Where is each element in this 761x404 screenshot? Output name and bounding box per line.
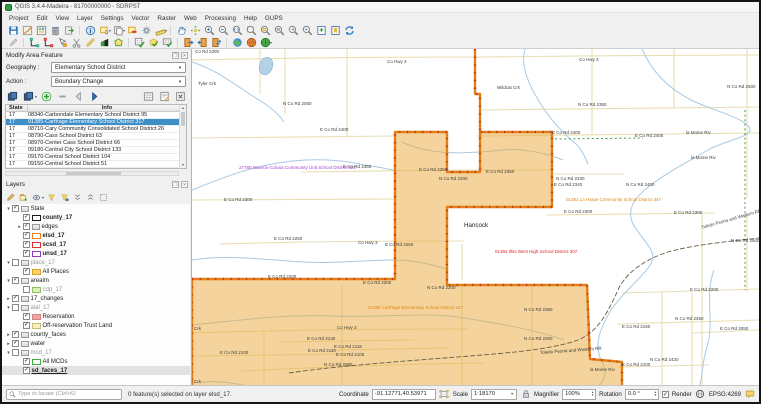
quality-grid-icon[interactable] — [160, 37, 174, 49]
layer-label: State — [31, 206, 45, 212]
qgis-logo-icon — [5, 4, 12, 11]
map-label: Tyler Crk — [198, 81, 217, 86]
project-save-icon[interactable] — [6, 25, 20, 37]
modify-features-icon[interactable] — [55, 37, 69, 49]
chevron-down-icon: ▼ — [510, 392, 514, 396]
layer-tree-item[interactable]: ▸✓17_changes — [2, 294, 190, 303]
close-tool-icon[interactable] — [173, 90, 187, 103]
export-map-icon[interactable] — [62, 25, 76, 37]
table-row[interactable]: 1709180-Central City School District 133 — [6, 147, 179, 154]
magnifier-spinbox[interactable]: 100% ▲▼ — [562, 389, 596, 400]
layer-checkbox[interactable] — [12, 259, 19, 266]
map-label: E Co Rd 2400 — [635, 133, 664, 138]
layer-label: arealm — [31, 278, 49, 284]
filter-expression-icon[interactable] — [59, 193, 70, 203]
map-label: E Co Rd 2115 — [334, 344, 362, 349]
map-label: Co Rd 2300 — [195, 49, 220, 54]
layer-tree-item[interactable]: ✓scsd_17 — [2, 240, 190, 249]
expander-icon[interactable]: ▾ — [5, 206, 12, 212]
cell-info: 08340-Carbondale Elementary School Distr… — [28, 112, 179, 118]
layer-checkbox[interactable] — [23, 286, 30, 293]
cell-info: 01385-Carthage Elementary School Distric… — [28, 119, 179, 125]
map-label: E Co Rd 2250 — [274, 236, 303, 241]
zoom-to-selection-icon[interactable] — [258, 25, 272, 37]
map-label: E Co Rd 2050 — [720, 326, 749, 331]
attribute-table-icon[interactable] — [141, 90, 155, 103]
add-area-icon[interactable] — [39, 90, 53, 103]
layer-swatch — [32, 242, 41, 248]
style-manager-icon[interactable] — [20, 25, 34, 37]
map-label: N Co Rd 2095 — [324, 362, 353, 367]
layer-label: place_17 — [31, 260, 55, 266]
group-icon — [21, 260, 29, 266]
expander-icon[interactable]: ▾ — [5, 260, 12, 266]
map-label: Hancock — [464, 222, 489, 229]
layer-label: mcd_17 — [31, 350, 52, 356]
layer-checkbox[interactable]: ✓ — [12, 340, 19, 347]
menu-item-settings[interactable]: Settings — [97, 15, 128, 22]
locate-box[interactable] — [6, 389, 122, 400]
cell-state: 17 — [6, 112, 28, 118]
layer-tree: ▾✓State✓county_17▸✓edges✓elsd_17✓scsd_17… — [2, 204, 190, 389]
geography-select[interactable]: Elementary School District ▼ — [51, 62, 186, 73]
layer-label: aial_17 — [31, 305, 50, 311]
scroll-thumb[interactable] — [181, 112, 185, 126]
map-label: N Co Rd 2330 — [556, 176, 585, 181]
map-label: E Co Rd 2300 — [224, 197, 253, 202]
import-door-icon[interactable] — [181, 37, 195, 49]
crs-globe-icon[interactable] — [695, 389, 706, 400]
window-title: QGIS 3.4.4-Madeira - 81700000000 - SDRPS… — [15, 4, 140, 10]
zoom-native-icon[interactable] — [230, 25, 244, 37]
toolbar-separator — [23, 38, 24, 47]
cell-state: 17 — [6, 140, 28, 146]
layer-tree-item[interactable]: ▸✓edges — [2, 222, 190, 231]
table-body: 1708340-Carbondale Elementary School Dis… — [6, 112, 179, 168]
map-label: la Moine Riv — [686, 130, 712, 135]
layer-label: unsd_17 — [43, 251, 67, 257]
chevron-down-icon: ▼ — [178, 79, 182, 84]
manage-map-themes-icon[interactable] — [31, 193, 42, 203]
map-label: N Co Rd 2050 — [283, 101, 312, 106]
group-icon — [21, 278, 29, 284]
geography-label: Geography : — [6, 64, 48, 71]
open-layer-styling-icon[interactable] — [5, 193, 16, 203]
toolbar-separator — [226, 38, 227, 47]
rotation-spinbox[interactable]: 0.0 ° ▲▼ — [625, 389, 659, 400]
layer-checkbox[interactable] — [12, 304, 19, 311]
search-icon — [9, 391, 16, 398]
menu-item-vector[interactable]: Vector — [128, 15, 154, 22]
map-label: E Co Rd 2100 — [622, 362, 651, 367]
zoom-in-icon[interactable] — [202, 25, 216, 37]
table-row[interactable]: 1708710-Cary Community Consolidated Scho… — [6, 126, 179, 133]
map-label: Wildcat Crk — [497, 85, 521, 90]
map-label: E Co Rd 2400 — [320, 127, 349, 132]
table-hscrollbar[interactable] — [5, 171, 179, 176]
map-label: E Co Rd 2130 — [307, 336, 336, 341]
layer-checkbox[interactable]: ✓ — [23, 322, 30, 329]
map-label: E Co Rd 2340 — [554, 182, 583, 187]
map-label: Co Hwy 3 — [337, 325, 357, 330]
action-value: Boundary Change — [55, 79, 103, 85]
cut-features-icon[interactable] — [69, 37, 83, 49]
layer-tree-item[interactable]: ▸✓county_faces — [2, 330, 190, 339]
map-label: Crk — [194, 326, 202, 331]
map-label: N Co Rd 2300 — [524, 336, 553, 341]
scroll-up-icon[interactable]: ▲ — [180, 106, 186, 110]
left-panel: Modify Area Feature ❐ ✕ Geography : Elem… — [2, 49, 192, 389]
dropdown-arrow-icon[interactable]: ▾ — [270, 40, 272, 45]
layer-tree-item[interactable]: ▾mcd_17 — [2, 348, 190, 357]
render-checkbox[interactable]: ✓ — [662, 391, 669, 398]
layer-label: elsd_17 — [43, 233, 65, 239]
scale-select[interactable]: 1:18170 ▼ — [471, 389, 517, 400]
panel-title-text: Modify Area Feature — [6, 52, 63, 59]
expander-icon[interactable]: ▾ — [5, 350, 12, 356]
group-icon — [21, 341, 29, 347]
cell-state: 17 — [6, 119, 28, 125]
expander-icon[interactable]: ▸ — [5, 332, 12, 338]
layer-swatch — [32, 314, 41, 320]
group-icon — [32, 224, 40, 230]
collapse-all-icon[interactable] — [85, 193, 96, 203]
layer-tree-item[interactable]: ▾aial_17 — [2, 303, 190, 312]
layer-label: edges — [42, 224, 58, 230]
layer-swatch — [32, 323, 41, 329]
application-window: QGIS 3.4.4-Madeira - 81700000000 - SDRPS… — [0, 0, 761, 404]
map-refresh-icon[interactable] — [342, 25, 356, 37]
geography-value: Elementary School District — [55, 65, 125, 71]
expander-icon[interactable]: ▸ — [5, 341, 12, 347]
district-table: State Info 1708340-Carbondale Elementary… — [5, 104, 187, 169]
snapping-icon[interactable] — [97, 37, 111, 49]
status-bar: 0 feature(s) selected on layer elsd_17. … — [2, 385, 759, 402]
layer-label: county_17 — [43, 215, 73, 221]
edit-attributes-icon[interactable] — [157, 90, 171, 103]
map-svg: Co Rd 2300Tyler CrkN Co Rd 2050Co Hwy 3C… — [192, 49, 759, 389]
copy-selection-menu-icon[interactable] — [21, 90, 35, 103]
toolbar-separator — [177, 38, 178, 47]
group-icon — [21, 206, 29, 212]
scale-value: 1:18170 — [474, 391, 495, 397]
layer-tree-item[interactable]: ✓All Places — [2, 267, 190, 276]
cell-info: 08970-Center Cass School District 66 — [28, 140, 179, 146]
render-label: Render — [672, 391, 692, 398]
layers-panel-title: Layers ❐ ✕ — [2, 179, 191, 190]
layer-swatch — [32, 287, 41, 293]
magnifier-label: Magnifier — [534, 391, 559, 398]
show-bookmarks-icon[interactable] — [328, 25, 342, 37]
add-group-icon[interactable] — [18, 193, 29, 203]
map-label: N Co Rd 2200 — [427, 285, 456, 290]
table-header[interactable]: State Info — [6, 105, 186, 112]
hscroll-thumb[interactable] — [66, 172, 121, 175]
map-label: N Co Rd 2350 — [578, 102, 607, 107]
vertex-tool-icon[interactable] — [27, 37, 41, 49]
map-label: N Co Rd 2500 — [727, 84, 756, 89]
map-label: 01385 Carthage Elementary School Distric… — [368, 305, 464, 310]
toggle-editing-icon[interactable] — [6, 37, 20, 49]
group-icon — [21, 350, 29, 356]
zoom-out-icon[interactable] — [216, 25, 230, 37]
scroll-down-icon[interactable]: ▼ — [180, 163, 186, 167]
dropdown-arrow-icon[interactable]: ▾ — [165, 28, 167, 33]
layer-label: cdp_17 — [43, 287, 63, 293]
layer-label: All MCDs — [43, 359, 68, 365]
layer-swatch — [32, 233, 41, 239]
title-bar: QGIS 3.4.4-Madeira - 81700000000 - SDRPS… — [2, 2, 759, 13]
menu-item-project[interactable]: Project — [5, 15, 33, 22]
pan-to-selection-icon[interactable] — [188, 25, 202, 37]
float-panel-icon[interactable]: ❐ — [172, 181, 179, 188]
map-label: Crk — [194, 379, 202, 384]
extent-icon[interactable] — [439, 389, 450, 400]
cell-info: 08710-Cary Community Consolidated School… — [28, 126, 179, 132]
close-panel-icon[interactable]: ✕ — [181, 181, 188, 188]
menu-item-view[interactable]: View — [51, 15, 73, 22]
menu-item-gups[interactable]: GUPS — [261, 15, 287, 22]
map-label: 01381 La Harpe Community School District… — [566, 197, 662, 202]
layer-label: 17_changes — [31, 296, 64, 302]
map-label: E Co Rd 2100 — [220, 350, 249, 355]
layer-tree-item[interactable]: ▾✓arealm — [2, 276, 190, 285]
chevron-down-icon: ▼ — [178, 65, 182, 70]
toolbar-separator — [128, 38, 129, 47]
orange-sphere-icon[interactable] — [244, 37, 258, 49]
menu-item-web[interactable]: Web — [180, 15, 201, 22]
cell-state: 17 — [6, 161, 28, 167]
table-scrollbar[interactable]: ▲ ▼ — [179, 105, 186, 168]
layer-label: Off-reservation Trust Land — [43, 323, 113, 329]
layout-manager-icon[interactable] — [34, 25, 48, 37]
vertex-tool-active-layer-icon[interactable] — [41, 37, 55, 49]
layer-checkbox[interactable]: ✓ — [23, 367, 30, 374]
table-row[interactable]: 1701385-Carthage Elementary School Distr… — [6, 119, 179, 126]
menu-item-edit[interactable]: Edit — [33, 15, 52, 22]
map-label: E Co Rd 2400 — [552, 130, 581, 135]
layer-checkbox[interactable]: ✓ — [23, 214, 30, 221]
layer-label: county_faces — [31, 332, 66, 338]
layer-swatch — [32, 269, 41, 275]
menu-item-help[interactable]: Help — [240, 15, 261, 22]
validate-grid-icon[interactable] — [132, 37, 146, 49]
group-icon — [21, 305, 29, 311]
map-label: N Co Rd 2450 — [675, 316, 704, 321]
magnifier-value: 100% — [565, 391, 580, 397]
new-bookmark-icon[interactable] — [314, 25, 328, 37]
column-info[interactable]: Info — [28, 105, 186, 111]
menu-bar: ProjectEditViewLayerSettingsVectorRaster… — [2, 13, 759, 24]
expand-all-icon[interactable] — [72, 193, 83, 203]
float-panel-icon[interactable]: ❐ — [172, 52, 179, 59]
map-label: E Co Rd 2350 — [486, 169, 515, 174]
rotation-value: 0.0 ° — [628, 391, 640, 397]
map-label: Co Hwy 3 — [387, 59, 407, 64]
filter-legend-icon[interactable] — [46, 193, 57, 203]
group-icon — [21, 296, 29, 302]
layer-label: water — [31, 341, 46, 347]
table-row[interactable]: 1708340-Carbondale Elementary School Dis… — [6, 112, 179, 119]
map-label: E Co Rd 2300 — [564, 209, 593, 214]
layer-label: All Places — [43, 269, 69, 275]
map-label: E Co Rd 2350 — [343, 164, 372, 169]
panel-title-text: Layers — [6, 181, 25, 188]
zoom-full-icon[interactable] — [244, 25, 258, 37]
layer-tree-item[interactable]: ✓elsd_17 — [2, 231, 190, 240]
toolbar-separator — [79, 26, 80, 35]
layer-tree-item[interactable]: ✓Reservation — [2, 312, 190, 321]
layer-checkbox[interactable]: ✓ — [23, 250, 30, 257]
layer-swatch — [32, 215, 41, 221]
layer-tree-item[interactable]: ✓Off-reservation Trust Land — [2, 321, 190, 330]
rotation-label: Rotation — [599, 391, 622, 398]
layer-tree-item[interactable]: ✓All MCDs — [2, 357, 190, 366]
map-label: Co Hwy 3 — [579, 57, 599, 62]
pan-map-icon[interactable] — [174, 25, 188, 37]
cell-info: 09170-Central School District 104 — [28, 154, 179, 160]
layer-tree-item[interactable]: ▾✓State — [2, 204, 190, 213]
map-label: E Co Rd 2150 — [622, 324, 651, 329]
menu-item-layer[interactable]: Layer — [73, 15, 97, 22]
map-canvas[interactable]: Co Rd 2300Tyler CrkN Co Rd 2050Co Hwy 3C… — [192, 49, 759, 389]
layer-tree-item[interactable]: ▸✓water — [2, 339, 190, 348]
locate-input[interactable] — [18, 391, 119, 397]
map-label: E Co Rd 2300 — [674, 210, 703, 215]
next-feature-icon[interactable] — [87, 90, 101, 103]
zoom-to-layer-icon[interactable] — [272, 25, 286, 37]
edit-toolbar: ▾ — [2, 37, 759, 49]
expander-icon[interactable]: ▸ — [16, 224, 23, 230]
modify-area-feature-title: Modify Area Feature ❐ ✕ — [2, 50, 191, 61]
spin-arrows-icon[interactable]: ▲▼ — [591, 390, 594, 399]
coordinate-input[interactable] — [372, 389, 436, 400]
layer-checkbox[interactable]: ✓ — [12, 295, 19, 302]
map-label: E Co Rd 2350 — [419, 167, 448, 172]
options-gear-icon[interactable] — [139, 25, 153, 37]
expander-icon[interactable]: ▸ — [5, 296, 12, 302]
layer-checkbox[interactable]: ✓ — [12, 277, 19, 284]
copy-selection-icon[interactable] — [5, 90, 19, 103]
coordinate-label: Coordinate — [339, 391, 369, 398]
review-polygon-icon[interactable] — [146, 37, 160, 49]
layer-tree-item[interactable]: ✓unsd_17 — [2, 249, 190, 258]
measure-sketch-icon[interactable] — [83, 37, 97, 49]
layers-toolbar: ▾ — [5, 192, 187, 203]
dropdown-arrow-icon[interactable]: ▾ — [42, 195, 44, 200]
menu-item-processing[interactable]: Processing — [201, 15, 240, 22]
map-label: 27780 Nauvoo-Colusa Community Unit Schoo… — [239, 165, 356, 170]
layer-checkbox[interactable]: ✓ — [23, 223, 30, 230]
dropdown-arrow-icon[interactable]: ▾ — [35, 94, 37, 99]
main-toolbar: ▾▾▾ — [2, 24, 759, 37]
layer-tree-item[interactable]: cdp_17 — [2, 285, 190, 294]
action-select[interactable]: Boundary Change ▼ — [51, 76, 186, 87]
remove-layer-icon[interactable] — [98, 193, 109, 203]
layer-checkbox[interactable]: ✓ — [23, 232, 30, 239]
deselect-features-icon[interactable] — [125, 25, 139, 37]
layer-label: Reservation — [43, 314, 75, 320]
map-label: E Co Rd 2250 — [385, 242, 414, 247]
cell-info: 08790-Cass School District 63 — [28, 133, 179, 139]
map-label: la Moine Riv — [590, 367, 616, 372]
map-label: N Co Rd 2200 — [439, 176, 468, 181]
action-label: Action : — [6, 78, 48, 85]
layer-label: scsd_17 — [43, 242, 67, 248]
delete-selected-icon[interactable] — [48, 25, 62, 37]
scale-label: Scale — [453, 391, 468, 398]
web-globe-icon[interactable] — [230, 37, 244, 49]
map-label: N Co Rd 2500 — [731, 238, 759, 243]
export-door-icon[interactable] — [195, 37, 209, 49]
cell-state: 17 — [6, 154, 28, 160]
map-label: E Co Rd 2105 — [336, 352, 365, 357]
remove-area-icon[interactable] — [55, 90, 69, 103]
status-message: 0 feature(s) selected on layer elsd_17. — [128, 391, 232, 398]
close-panel-icon[interactable]: ✕ — [181, 52, 188, 59]
zoom-next-icon[interactable] — [300, 25, 314, 37]
cell-state: 17 — [6, 126, 28, 132]
previous-feature-icon[interactable] — [71, 90, 85, 103]
lock-scale-icon[interactable] — [520, 389, 531, 400]
layer-checkbox[interactable] — [12, 349, 19, 356]
messages-icon[interactable] — [744, 389, 755, 400]
expander-icon[interactable]: ▾ — [5, 278, 12, 284]
menu-item-raster[interactable]: Raster — [153, 15, 180, 22]
group-icon — [21, 332, 29, 338]
layer-checkbox[interactable]: ✓ — [12, 205, 19, 212]
identify-features-icon[interactable] — [83, 25, 97, 37]
map-label: N Co Rd 2380 — [524, 307, 553, 312]
layer-checkbox[interactable]: ✓ — [23, 241, 30, 248]
map-label: 01384 Illini West High School District 3… — [495, 249, 578, 254]
expander-icon[interactable]: ▾ — [5, 305, 12, 311]
layer-tree-item[interactable]: ▾place_17 — [2, 258, 190, 267]
table-row[interactable]: 1709150-Central School District 51 — [6, 161, 179, 168]
toolbar-separator — [170, 26, 171, 35]
spin-arrows-icon[interactable]: ▲▼ — [654, 390, 657, 399]
layer-tree-item[interactable]: ✓sd_faces_17 — [2, 366, 190, 375]
map-label: Co Hwy 3 — [358, 240, 378, 245]
map-label: N Co Rd 2420 — [650, 357, 679, 362]
cell-info: 09150-Central School District 51 — [28, 161, 179, 167]
map-label: E Co Rd 2200 — [690, 287, 719, 292]
layer-checkbox[interactable]: ✓ — [23, 358, 30, 365]
cell-state: 17 — [6, 133, 28, 139]
add-polygon-icon[interactable] — [111, 37, 125, 49]
cell-info: 09180-Central City School District 133 — [28, 147, 179, 153]
layer-swatch — [32, 359, 41, 365]
column-state[interactable]: State — [6, 105, 28, 111]
transfer-door-icon[interactable] — [209, 37, 223, 49]
layer-checkbox[interactable]: ✓ — [23, 268, 30, 275]
layer-checkbox[interactable]: ✓ — [12, 331, 19, 338]
modify-feature-toolbar: ▾ — [5, 89, 187, 104]
layer-tree-item[interactable]: ✓county_17 — [2, 213, 190, 222]
crs-value[interactable]: EPSG:4269 — [709, 391, 741, 398]
table-row[interactable]: 1708970-Center Cass School District 66 — [6, 140, 179, 147]
table-row[interactable]: 1708790-Cass School District 63 — [6, 133, 179, 140]
zoom-last-icon[interactable] — [286, 25, 300, 37]
action-row: Action : Boundary Change ▼ — [6, 76, 186, 87]
map-label: E Co Rd 2200 — [268, 274, 297, 279]
map-label: E Co Rd 2200 — [363, 280, 392, 285]
cell-state: 17 — [6, 147, 28, 153]
layer-checkbox[interactable]: ✓ — [23, 313, 30, 320]
map-label: la Moine Riv — [691, 155, 717, 160]
layer-swatch — [32, 251, 41, 257]
table-row[interactable]: 1709170-Central School District 104 — [6, 154, 179, 161]
